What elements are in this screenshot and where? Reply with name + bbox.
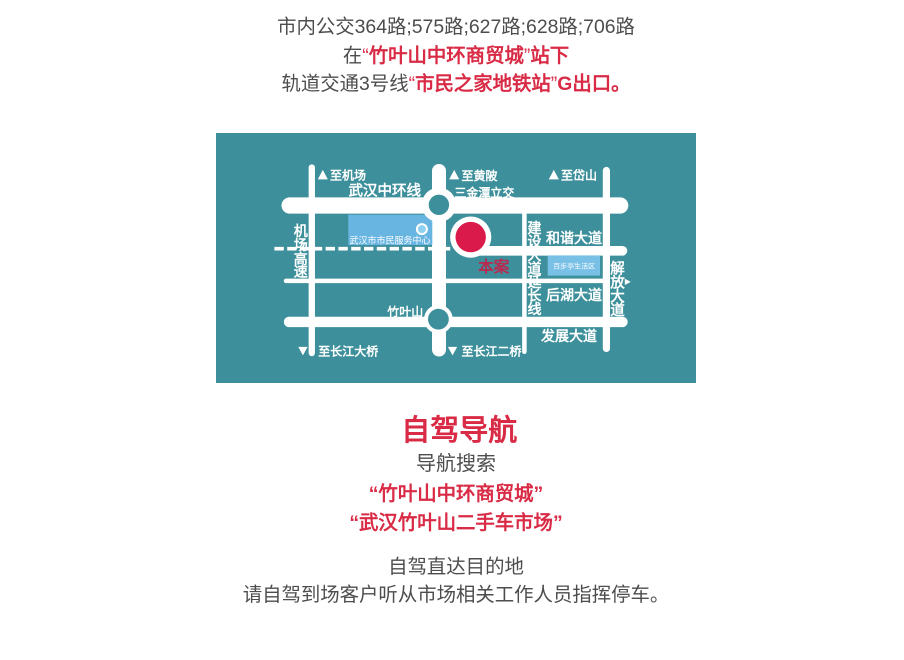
- svg-text:道: 道: [610, 301, 625, 319]
- svg-text:速: 速: [294, 264, 308, 280]
- svg-text:发展大道: 发展大道: [540, 328, 597, 344]
- svg-text:至机场: 至机场: [330, 168, 366, 183]
- svg-text:武汉中环线: 武汉中环线: [349, 181, 422, 199]
- svg-text:百步亭生活区: 百步亭生活区: [553, 262, 595, 271]
- svg-text:后湖大道: 后湖大道: [546, 287, 602, 303]
- svg-text:本案: 本案: [478, 257, 510, 276]
- svg-text:至长江大桥: 至长江大桥: [318, 344, 379, 359]
- svg-text:竹叶山: 竹叶山: [386, 304, 423, 319]
- svg-text:三金潭立交: 三金潭立交: [454, 185, 514, 200]
- svg-text:线: 线: [528, 301, 542, 317]
- svg-text:和谐大道: 和谐大道: [546, 230, 602, 246]
- svg-text:至岱山: 至岱山: [561, 168, 597, 183]
- svg-text:至黄陂: 至黄陂: [462, 168, 498, 183]
- svg-text:至长江二桥: 至长江二桥: [462, 344, 523, 359]
- svg-text:武汉市市民服务中心: 武汉市市民服务中心: [349, 235, 430, 246]
